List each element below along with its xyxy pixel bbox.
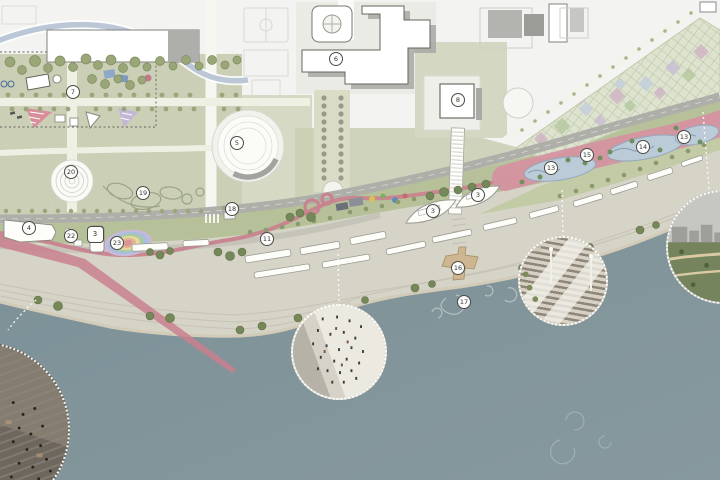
marker-18-15: 18: [225, 202, 239, 216]
marker-11-8: 11: [260, 232, 274, 246]
photo-crowded-riverside-steps: [0, 342, 70, 480]
marker-3-0: 3: [87, 226, 104, 243]
marker-5-4: 5: [230, 136, 244, 150]
masterplan-canvas: 33345678111315141316171819202223: [0, 0, 720, 480]
marker-13-12: 13: [677, 130, 691, 144]
people-dots: [293, 306, 385, 398]
boulevard-trees: [314, 90, 350, 201]
photo-park-skyline-view: [666, 190, 720, 304]
marker-19-16: 19: [136, 186, 150, 200]
marker-17-14: 17: [457, 295, 471, 309]
marker-3-2: 3: [471, 188, 485, 202]
photo-promenade-aerial-people: [291, 304, 387, 400]
marker-22-18: 22: [64, 229, 78, 243]
building-top-left: [47, 30, 199, 62]
marker-4-3: 4: [22, 221, 36, 235]
marker-3-1: 3: [426, 204, 440, 218]
photo-terraced-river-steps: [518, 236, 608, 326]
marker-8-7: 8: [451, 93, 465, 107]
marker-14-11: 14: [636, 140, 650, 154]
masterplan-drawing: [0, 0, 720, 480]
marker-6-5: 6: [329, 52, 343, 66]
marker-7-6: 7: [66, 85, 80, 99]
marker-15-10: 15: [580, 148, 594, 162]
marker-20-17: 20: [64, 165, 78, 179]
marker-13-9: 13: [544, 161, 558, 175]
marker-23-19: 23: [110, 236, 124, 250]
marker-16-13: 16: [451, 261, 465, 275]
